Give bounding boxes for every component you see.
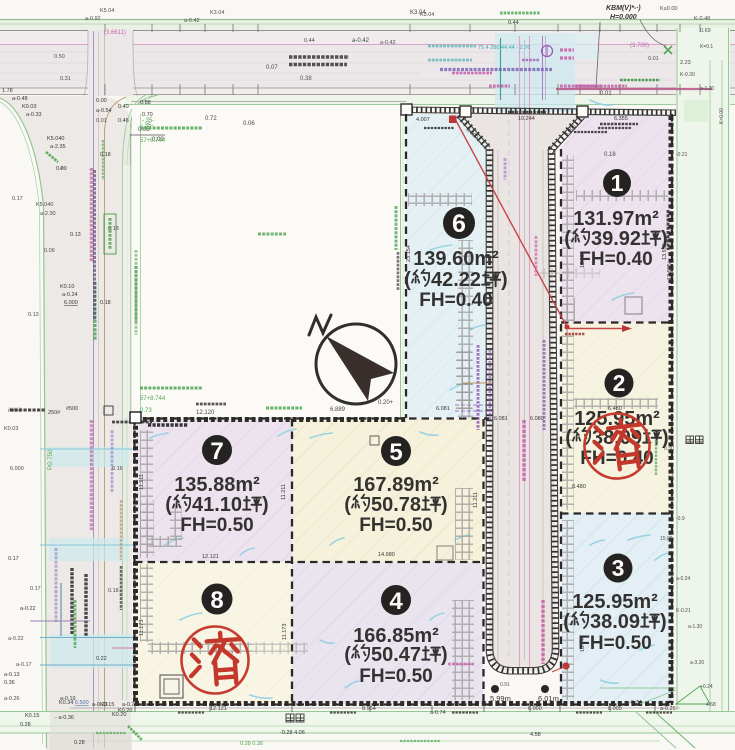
svg-text:0.00: 0.00 xyxy=(96,98,107,104)
svg-text:0.88: 0.88 xyxy=(140,100,151,106)
svg-text:0.17: 0.17 xyxy=(8,556,19,562)
svg-text:- a-0.36: - a-0.36 xyxy=(55,715,74,721)
svg-text:0.36: 0.36 xyxy=(4,680,15,686)
svg-text:a-0.22: a-0.22 xyxy=(20,606,36,612)
svg-text:0.44: 0.44 xyxy=(508,20,519,26)
svg-text:0.46: 0.46 xyxy=(118,118,129,124)
svg-text:0.18: 0.18 xyxy=(100,152,111,158)
svg-text:a-0.24: a-0.24 xyxy=(62,292,78,298)
svg-text:0.18: 0.18 xyxy=(100,300,111,306)
svg-text:0.70: 0.70 xyxy=(142,112,153,118)
svg-text:a-0.54: a-0.54 xyxy=(96,108,112,114)
svg-text:1.78: 1.78 xyxy=(2,88,13,94)
svg-text:K5.040: K5.040 xyxy=(47,136,64,142)
svg-text:0.13: 0.13 xyxy=(70,232,81,238)
svg-text:0.40: 0.40 xyxy=(118,104,129,110)
svg-text:#500: #500 xyxy=(66,406,78,412)
svg-text:a-0.13: a-0.13 xyxy=(4,672,20,678)
svg-text:K0.15: K0.15 xyxy=(100,702,114,708)
svg-text:K0.10: K0.10 xyxy=(60,284,74,290)
svg-text:K0.20: K0.20 xyxy=(112,712,126,718)
svg-text:K0.15: K0.15 xyxy=(25,713,39,719)
svg-text:6.000: 6.000 xyxy=(64,300,78,306)
svg-text:0.22: 0.22 xyxy=(96,656,107,662)
svg-text:0.09: 0.09 xyxy=(56,166,67,172)
svg-text:a-0.33: a-0.33 xyxy=(26,112,42,118)
svg-text:a-2.35: a-2.35 xyxy=(50,144,66,150)
svg-text:a-0.48: a-0.48 xyxy=(12,96,28,102)
svg-text:- 35-: - 35- xyxy=(141,123,153,129)
svg-text:K0.03: K0.03 xyxy=(22,104,36,110)
svg-text:K0.34 6.500: K0.34 6.500 xyxy=(59,700,89,706)
